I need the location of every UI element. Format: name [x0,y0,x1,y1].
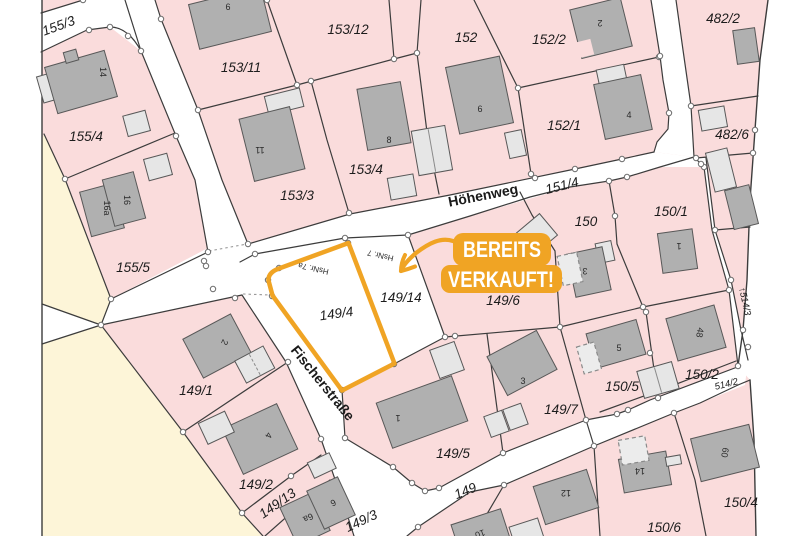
svg-text:VERKAUFT!: VERKAUFT! [448,267,554,292]
svg-text:2: 2 [597,18,602,28]
svg-text:150/5: 150/5 [605,379,639,394]
svg-text:4: 4 [626,110,631,120]
svg-text:482/2: 482/2 [706,11,740,26]
svg-text:6: 6 [225,2,230,12]
svg-text:153/3: 153/3 [280,188,314,203]
svg-text:152/2: 152/2 [532,32,566,47]
svg-text:1: 1 [395,413,400,423]
svg-text:11: 11 [255,145,264,155]
svg-text:14: 14 [635,466,645,476]
svg-text:8: 8 [386,135,391,145]
svg-text:149/14: 149/14 [380,290,421,305]
svg-text:482/6: 482/6 [715,127,749,142]
svg-text:150/6: 150/6 [647,520,681,535]
svg-text:16: 16 [122,195,132,205]
svg-text:12: 12 [561,488,571,498]
svg-text:149/6: 149/6 [486,293,520,308]
svg-text:150/1: 150/1 [654,204,688,219]
svg-text:BEREITS: BEREITS [463,237,541,262]
svg-text:153/4: 153/4 [349,162,383,177]
svg-text:152/1: 152/1 [547,118,581,133]
svg-text:5: 5 [616,343,621,353]
svg-text:48: 48 [694,327,706,339]
svg-text:149/5: 149/5 [436,446,470,461]
svg-text:153/11: 153/11 [221,60,261,75]
svg-text:3: 3 [520,376,525,386]
svg-text:152: 152 [455,30,478,45]
svg-text:155/5: 155/5 [116,260,150,275]
svg-text:150: 150 [575,214,598,229]
svg-text:16a: 16a [102,200,112,215]
svg-text:6: 6 [477,104,482,114]
svg-text:14: 14 [98,67,108,77]
svg-text:153/12: 153/12 [327,22,369,37]
svg-text:150/2: 150/2 [685,367,719,382]
svg-text:155/4: 155/4 [69,129,103,144]
svg-text:1: 1 [676,241,681,251]
svg-text:3: 3 [582,266,587,276]
svg-text:60: 60 [719,447,731,459]
svg-text:149/1: 149/1 [179,383,213,398]
svg-text:149/2: 149/2 [239,477,273,492]
svg-text:149/7: 149/7 [544,402,578,417]
svg-text:150/4: 150/4 [724,495,758,510]
